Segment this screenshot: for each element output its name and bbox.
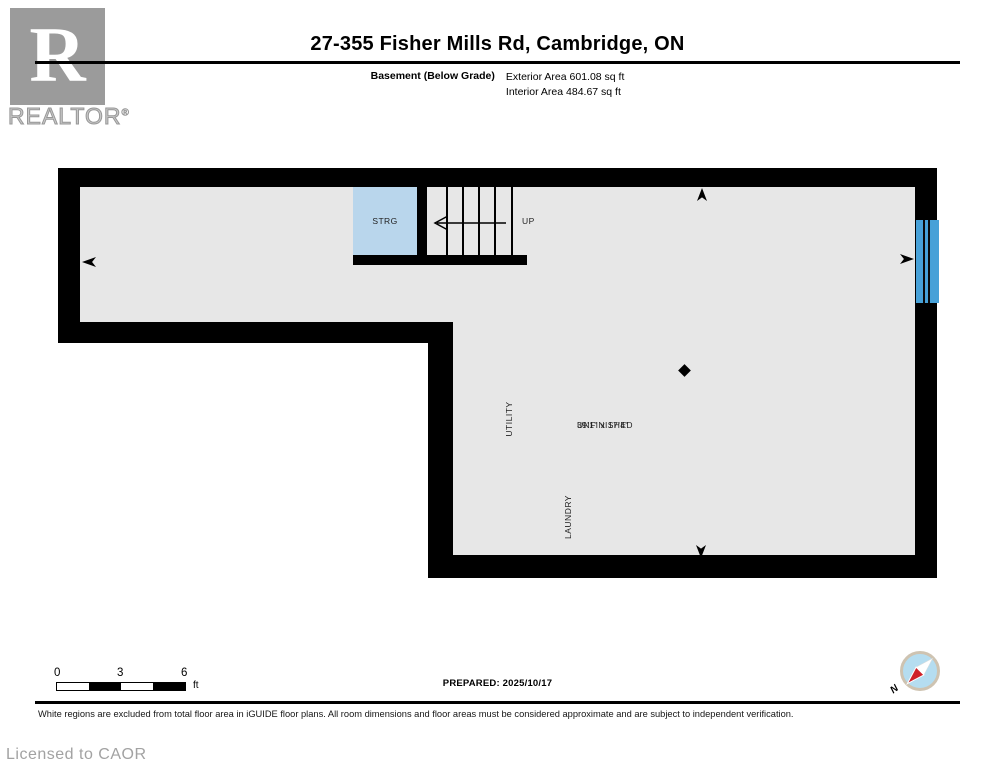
footer-divider	[35, 701, 960, 704]
page-title: 27-355 Fisher Mills Rd, Cambridge, ON	[35, 33, 960, 56]
floor-level-label: Basement (Below Grade)	[371, 70, 495, 82]
unfinished-dimensions: 39'1" x 17'4"	[577, 420, 629, 431]
storage-room: STRG	[353, 187, 417, 255]
compass-icon	[897, 649, 943, 695]
utility-label: UTILITY	[504, 401, 514, 436]
realtor-wordmark: REALTOR®	[8, 103, 128, 130]
title-divider	[35, 61, 960, 64]
stairs-up-label: UP	[522, 216, 535, 226]
wall-left	[58, 168, 80, 343]
license-text: Licensed to CAOR	[6, 746, 147, 764]
area-summary: Exterior Area 601.08 sq ft Interior Area…	[506, 70, 624, 100]
wall-top	[58, 168, 937, 187]
window	[916, 220, 939, 303]
stair-divider-wall	[417, 187, 427, 255]
interior-area: Interior Area 484.67 sq ft	[506, 85, 624, 100]
prepared-date: PREPARED: 2025/10/17	[35, 678, 960, 689]
floor-subheader: Basement (Below Grade) Exterior Area 601…	[35, 70, 960, 100]
storage-label: STRG	[372, 216, 397, 226]
wall-mid-horizontal	[58, 322, 453, 343]
realtor-wordmark-text: REALTOR	[8, 103, 122, 129]
registered-mark: ®	[122, 107, 130, 118]
stair-base-wall	[353, 255, 527, 265]
window-pane-line	[923, 220, 925, 303]
wall-bottom	[428, 555, 937, 578]
laundry-label: LAUNDRY	[563, 495, 573, 539]
wall-mid-vertical	[428, 322, 453, 578]
exterior-area: Exterior Area 601.08 sq ft	[506, 70, 624, 85]
disclaimer-text: White regions are excluded from total fl…	[38, 709, 958, 719]
window-pane-line	[928, 220, 930, 303]
floor-plan: STRG UP UTILITY UNFINISHED 39'1" x 17'4"…	[58, 168, 937, 578]
stair-direction-arrow	[428, 214, 513, 232]
